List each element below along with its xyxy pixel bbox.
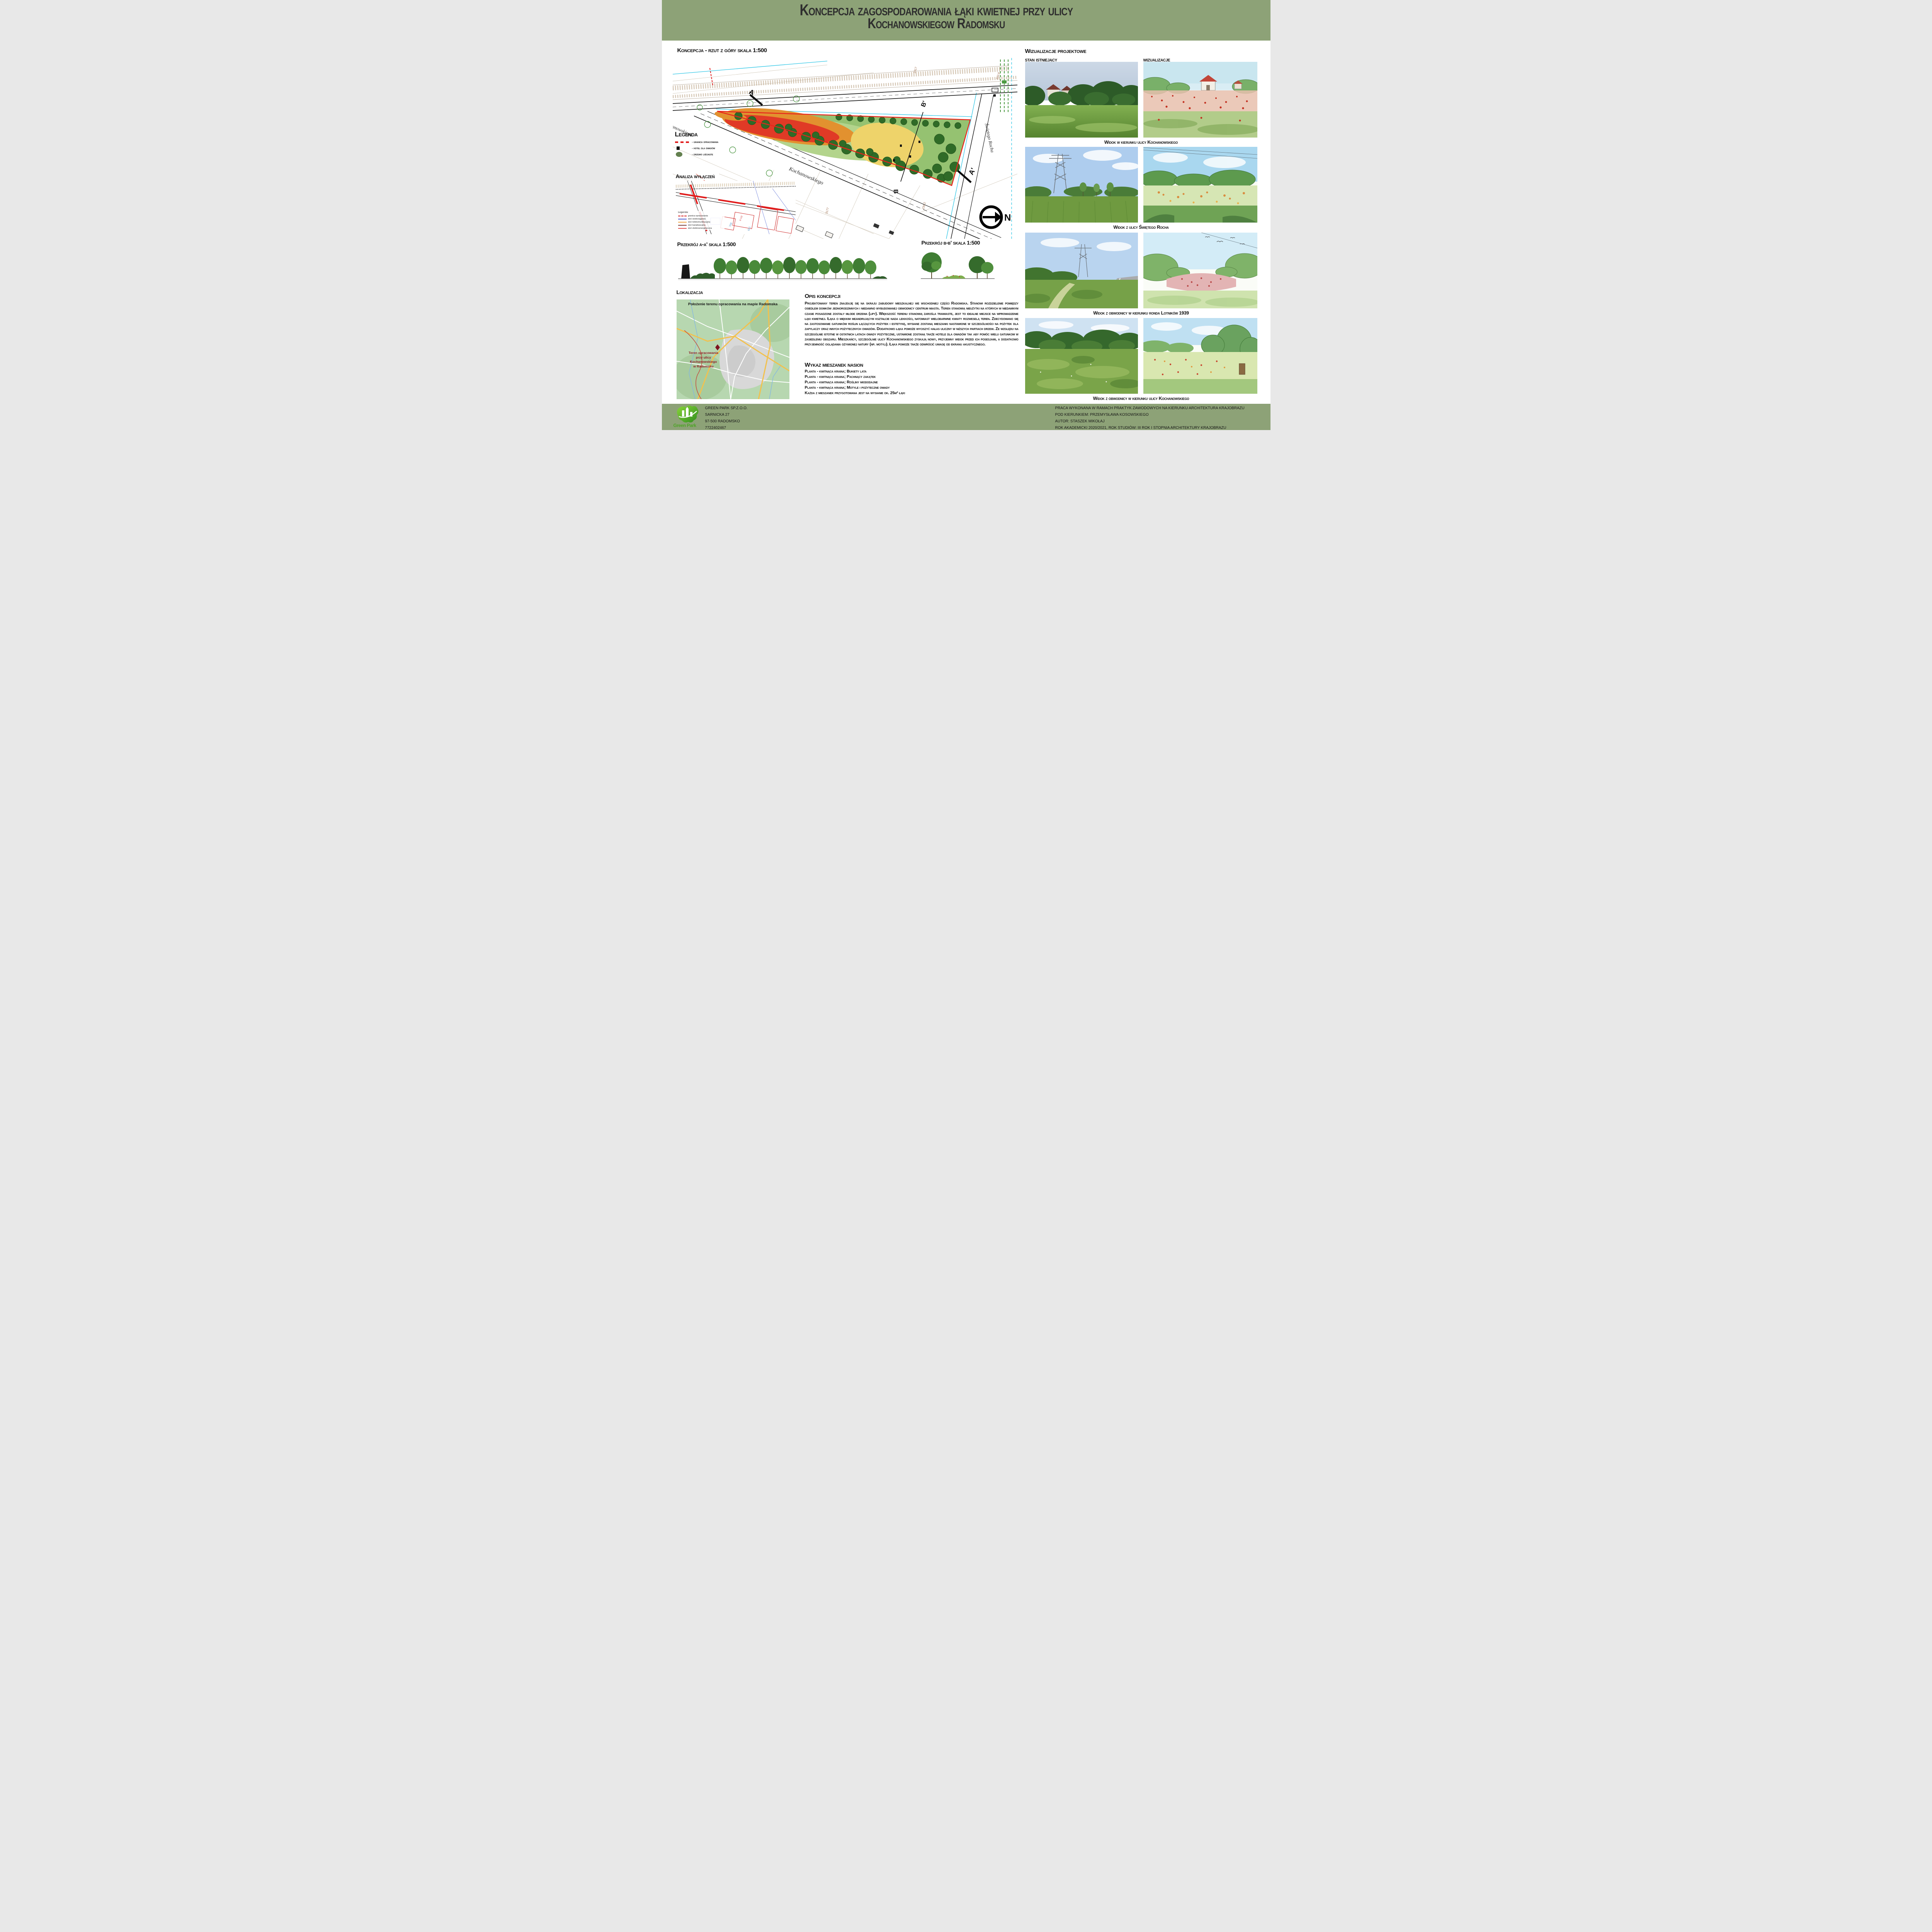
location-map-title: Położenie terenu opracowania na mapie Ra…: [677, 302, 789, 306]
analysis-heading: Analiza wyłączeń: [676, 173, 715, 179]
credit-line: PRACA WYKONANA W RAMACH PRAKTYK ZAWODOWY…: [1055, 405, 1245, 412]
insect-hotel-structure: [1239, 364, 1245, 374]
photo-existing-2: [1025, 147, 1138, 223]
visualizations-heading: Wizualizacje projektowe: [1025, 48, 1087, 54]
seed-mix-note: Każda z mieszanek przygotowana jest na w…: [805, 391, 1021, 395]
legend-heading: Legenda: [675, 131, 760, 138]
photo-existing-3: [1025, 233, 1138, 308]
seed-mixes-heading: Wykaz mieszanek nasion: [805, 362, 863, 368]
credit-line: ROK AKADEMICKI 2020/2021, ROK STUDIÓW: I…: [1055, 425, 1245, 430]
analysis-legend: Legenda: granica opracowania sieć wodoci…: [678, 211, 724, 230]
green-circle-icon: [675, 152, 690, 157]
tree-row: [714, 257, 876, 279]
caption-row-1: Widok w kierunku ulicy Kochanowskiego: [1025, 139, 1257, 145]
right-trees: [969, 256, 993, 279]
project-credits: PRACA WYKONANA W RAMACH PRAKTYK ZAWODOWY…: [1055, 405, 1245, 430]
poster-page: Koncepcja zagospodarowania łąki kwietnej…: [662, 0, 1270, 430]
header-band: Koncepcja zagospodarowania łąki kwietnej…: [662, 0, 1270, 41]
seed-mix-item: Planta - kwitnąca kraina; Motyle i pożyt…: [805, 386, 1021, 390]
meadow-strip: [942, 275, 966, 279]
visualization-3: [1143, 233, 1257, 308]
red-dashed-line-icon: [675, 141, 690, 143]
green-park-logo-text: Green Park: [673, 423, 696, 428]
legend-item-boundary: - granica opracowania: [675, 139, 760, 145]
credit-line: POD KIERUNKIEM: PRZEMYSŁAWA KOSOWSKIEGO: [1055, 412, 1245, 418]
seed-mix-item: Planta - kwitnąca kraina; Rośliny miodod…: [805, 380, 1021, 384]
black-square-icon: [675, 146, 690, 150]
section-a-heading: Przekrój a-a' skala 1:500: [677, 241, 736, 247]
left-tree: [922, 252, 942, 279]
section-b-drawing: [920, 249, 995, 283]
location-map: [677, 299, 789, 399]
company-id: 7722402467: [705, 425, 748, 430]
caption-row-2: Widok z ulicy Świętego Rocha: [1025, 224, 1257, 230]
visualization-2: [1143, 147, 1257, 223]
credit-line: AUTOR: STASZEK MIKOŁAJ: [1055, 418, 1245, 425]
section-a-drawing: [677, 250, 888, 283]
orange-swatch: [678, 222, 687, 223]
acoustic-wall: [681, 264, 690, 279]
location-marker-label: Teren opracowania przy ulicy Kochanowski…: [684, 351, 723, 369]
maroon-swatch: [678, 225, 687, 226]
description-body: Projektowany teren znajduję się na skraj…: [805, 301, 1019, 347]
legend-item-tree: - drzewo liściaste: [675, 152, 760, 157]
lightred-swatch: [678, 228, 687, 229]
plan-legend: Legenda - granica opracowania - hotel dl…: [675, 131, 760, 157]
red-dashed-swatch: [678, 216, 687, 216]
company-name: GREEN PARK SP.Z.O.O.: [705, 405, 748, 412]
visualization-4: [1143, 318, 1257, 394]
seed-mix-item: Planta - kwitnąca kraina; Bukiety lata: [805, 369, 1021, 374]
company-info: GREEN PARK SP.Z.O.O. SARNICKA 27 97-500 …: [705, 405, 748, 430]
legend-item-insect-hotel: - hotel dla owadów: [675, 146, 760, 151]
section-b-heading: Przekrój b-b' skala 1:500: [922, 240, 980, 246]
title-line-2: Kochanowskiegow Radomsku: [706, 16, 1167, 31]
shrub-band: [690, 273, 715, 279]
caption-row-3: Widok z obwodnicy w kierunku ronda Lotni…: [1025, 310, 1257, 316]
caption-row-4: Widok z obwodnicy w kierunku ulicy Kocha…: [1025, 396, 1257, 401]
visualization-1: [1143, 62, 1257, 138]
green-park-logo-icon: [676, 405, 700, 423]
photo-existing-1: [1025, 62, 1138, 138]
location-heading: Lokalizacja: [677, 289, 703, 295]
blue-swatch: [678, 219, 687, 219]
company-street: SARNICKA 27: [705, 412, 748, 418]
company-city: 97-500 RADOMSKO: [705, 418, 748, 425]
poster-title: Koncepcja zagospodarowania łąki kwietnej…: [662, 2, 1211, 30]
analysis-legend-title: Legenda:: [678, 211, 724, 214]
label-b: B: [892, 189, 899, 194]
photo-existing-4: [1025, 318, 1138, 394]
north-label: N: [1004, 213, 1011, 223]
plan-heading: Koncepcja - rzut z góry skala 1:500: [677, 47, 767, 54]
seed-mix-item: Planta - kwitnąca kraina; Pachnący zakąt…: [805, 375, 1021, 379]
description-heading: Opis koncepcji: [805, 293, 840, 299]
